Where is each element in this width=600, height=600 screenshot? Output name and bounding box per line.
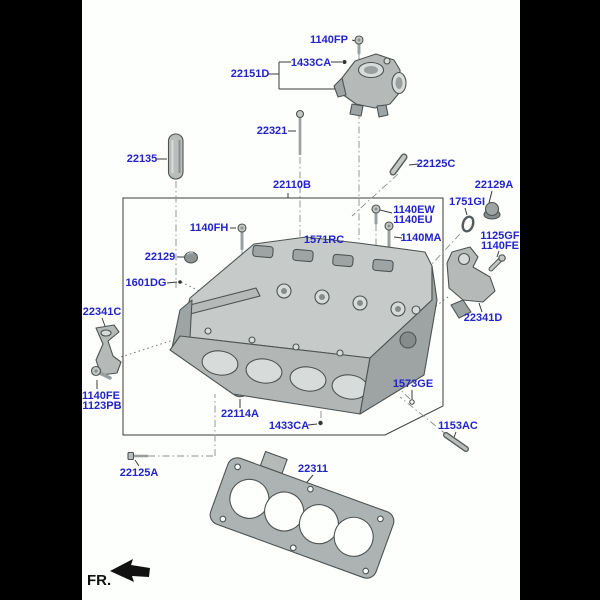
callout-1140fp[interactable]: 1140FP [310,34,348,46]
callout-1601dg[interactable]: 1601DG [126,277,167,289]
callout-1573ge[interactable]: 1573GE [393,378,433,390]
callout-1140fe-right[interactable]: 1140FE [481,240,519,252]
callout-1433ca-top[interactable]: 1433CA [291,57,331,69]
callout-22311[interactable]: 22311 [298,463,328,475]
callout-1123pb[interactable]: 1123PB [82,400,121,412]
callout-1140eu[interactable]: 1140EU [393,214,432,226]
callout-layer: 1140FP1433CA22151D223212213522110B22125C… [0,0,600,600]
callout-1153ac[interactable]: 1153AC [438,420,478,432]
callout-22321[interactable]: 22321 [257,125,288,137]
callout-1140ma[interactable]: 1140MA [401,232,442,244]
callout-1140fh[interactable]: 1140FH [190,222,229,234]
callout-1751gi[interactable]: 1751GI [449,196,485,208]
callout-22135[interactable]: 22135 [127,153,158,165]
callout-22341c[interactable]: 22341C [83,306,122,318]
fr-label: FR. [87,572,111,589]
callout-22125c[interactable]: 22125C [417,158,456,170]
callout-22114a[interactable]: 22114A [221,408,259,420]
callout-1571rc[interactable]: 1571RC [304,234,344,246]
callout-1433ca-bottom[interactable]: 1433CA [269,420,309,432]
callout-22341d[interactable]: 22341D [464,312,503,324]
diagram-stage: 1140FP1433CA22151D223212213522110B22125C… [0,0,600,600]
callout-22129[interactable]: 22129 [145,251,176,263]
callout-22151d[interactable]: 22151D [231,68,270,80]
callout-22125a[interactable]: 22125A [120,467,159,479]
callout-22110b[interactable]: 22110B [273,179,311,191]
callout-22129a[interactable]: 22129A [475,179,514,191]
